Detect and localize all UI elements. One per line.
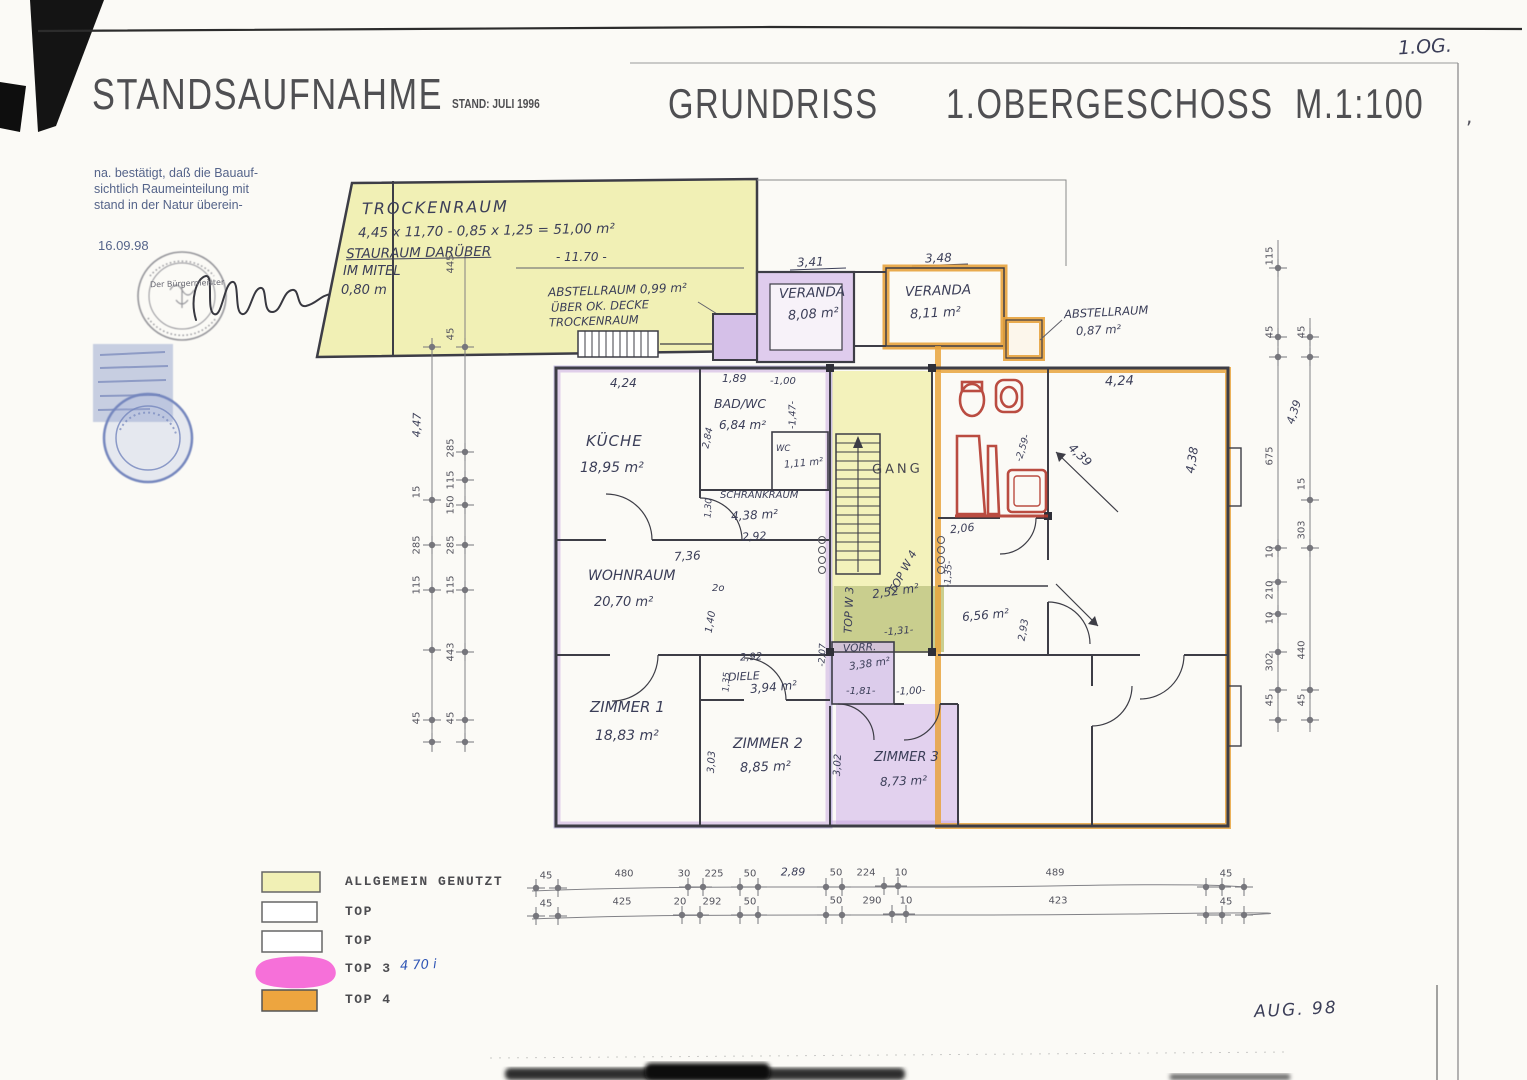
dim-label: -2,07 — [817, 643, 828, 667]
room-label-wc: WC — [776, 444, 790, 454]
room-label-top-w3: TOP W 3 — [842, 586, 857, 633]
dim-label: -1,81- — [846, 686, 875, 697]
room-label-schrankraum: SCHRANKRAUM — [720, 490, 798, 501]
chain-label: 45 — [1265, 326, 1276, 339]
room-area-kueche: 18,95 m² — [580, 460, 644, 476]
legend-item-top4: TOP 4 — [345, 992, 392, 1007]
chain-label: 45 — [1220, 869, 1233, 880]
certification-date: 16.09.98 — [98, 238, 149, 254]
dim-label: 2,92 — [742, 529, 767, 543]
dim-label: - 11.70 - — [556, 250, 607, 264]
chain-label: 10 — [1265, 546, 1276, 559]
chain-label: 150 — [446, 495, 457, 514]
certification-line3: stand in der Natur überein- — [94, 197, 243, 213]
scan-artifacts — [0, 0, 1290, 1080]
chain-label: 115 — [446, 575, 457, 594]
chain-label: 4,47 — [410, 413, 424, 438]
chain-label: 115 — [446, 470, 457, 489]
room-area-bad: 6,84 m² — [719, 418, 766, 432]
dim-label: 1,35 — [721, 672, 732, 693]
legend-item-top3: TOP 3 — [345, 961, 392, 976]
chain-label: 10 — [900, 896, 913, 907]
room-label-wohnraum: WOHNRAUM — [588, 568, 676, 584]
room-area-abstellraum: 0,87 m² — [1076, 322, 1122, 338]
chain-label: 285 — [412, 535, 423, 554]
dim-label: 2,06 — [949, 521, 975, 536]
chain-label: 425 — [612, 897, 631, 908]
veranda-blocks — [713, 268, 1062, 362]
chain-label: 20 — [674, 897, 687, 908]
dim-label: 3,48 — [925, 251, 952, 266]
dim-label: -1,00- — [896, 685, 926, 698]
room-label-trockenraum: TROCKENRAUM — [362, 197, 509, 219]
dim-label: 3,41 — [797, 255, 824, 270]
dim-label: -1,00 — [770, 376, 796, 387]
chain-label: 50 — [744, 897, 757, 908]
legend-swatch-white1 — [262, 902, 317, 922]
red-fixtures — [955, 380, 1048, 516]
dim-label: 2o — [712, 583, 724, 594]
room-area-veranda2: 8,11 m² — [910, 305, 962, 323]
chain-label: 50 — [744, 869, 757, 880]
legend-swatch-magenta — [255, 956, 335, 988]
chain-label: 302 — [1265, 652, 1276, 671]
chain-label: 303 — [1297, 520, 1308, 539]
chain-label: 45 — [1297, 326, 1308, 339]
legend-swatch-white2 — [262, 931, 322, 952]
legend-item-top1: TOP — [345, 904, 373, 919]
dim-label: 3,02 — [832, 754, 844, 777]
certification-line1: na. bestätigt, daß die Bauauf- — [94, 165, 258, 181]
room-label-veranda1: VERANDA — [779, 284, 846, 302]
dim-label: -1,35- — [943, 560, 954, 587]
dim-label: 7,36 — [674, 548, 701, 563]
dim-label: -1,47- — [788, 401, 799, 429]
sheet-frame — [38, 27, 1522, 1080]
chain-label: 10 — [895, 868, 908, 879]
chain-label: 45 — [540, 899, 553, 910]
trockenraum-note1: STAURAUM DARÜBER — [346, 244, 491, 263]
dim-label: 4,24 — [1105, 373, 1134, 389]
chain-label: 45 — [1220, 897, 1233, 908]
room-label-gang: GANG — [872, 462, 923, 478]
dim-label: 4,24 — [610, 376, 637, 390]
status-date: STAND: JULI 1996 — [452, 96, 540, 111]
room-label-zimmer2: ZIMMER 2 — [733, 736, 803, 752]
chain-label: 224 — [856, 868, 875, 879]
page-title: STANDSAUFNAHME — [92, 70, 443, 120]
chain-label: 45 — [446, 328, 457, 341]
chain-label: 225 — [704, 869, 723, 880]
chain-label: 440 — [1297, 640, 1308, 659]
room-label-kueche: KÜCHE — [586, 432, 643, 450]
chain-label: 10 — [1265, 612, 1276, 625]
legend-item-allgemein: ALLGEMEIN GENUTZT — [345, 874, 503, 889]
chain-label: 675 — [1265, 446, 1276, 465]
chain-label: 480 — [614, 869, 633, 880]
legend-swatches — [255, 872, 335, 1011]
corner-note: 1.OG. — [1397, 35, 1452, 60]
chain-label: 45 — [1265, 694, 1276, 707]
chain-label: 45 — [540, 871, 553, 882]
mayor-stamp-icon — [138, 252, 226, 340]
room-area-zimmer2: 8,85 m² — [740, 759, 791, 776]
drawing-type: GRUNDRISS — [668, 80, 879, 128]
room-area-wohnraum: 20,70 m² — [594, 595, 653, 610]
certification-line2: sichtlich Raumeinteilung mit — [94, 181, 249, 197]
room-label-zimmer1: ZIMMER 1 — [590, 698, 665, 716]
chain-label: 2,89 — [781, 866, 806, 879]
chain-label: 292 — [702, 897, 721, 908]
chain-label: 50 — [830, 868, 843, 879]
blue-stamp-icon — [93, 344, 192, 482]
dim-label: 1,89 — [722, 372, 747, 385]
room-area-zimmer1: 18,83 m² — [595, 728, 659, 744]
trockenraum-note2: IM MITEL — [343, 264, 401, 279]
chain-label: 445 — [446, 254, 457, 273]
chain-label: 115 — [1265, 246, 1276, 265]
legend-top3-handwriting: 4 70 i — [400, 957, 437, 974]
chain-label: 210 — [1265, 580, 1276, 599]
chain-label: 285 — [446, 535, 457, 554]
chain-label: 443 — [446, 642, 457, 661]
chain-label: 30 — [678, 869, 691, 880]
floor-scale: 1.OBERGESCHOSS M.1:100 — [946, 80, 1424, 128]
chain-label: 45 — [412, 712, 423, 725]
chain-label: 15 — [412, 486, 423, 499]
chain-label: 489 — [1045, 868, 1064, 879]
chain-label: 15 — [1297, 478, 1308, 491]
legend-swatch-yellow — [262, 872, 320, 892]
chain-label: 50 — [830, 896, 843, 907]
chain-label: 45 — [1297, 694, 1308, 707]
chain-label: 285 — [446, 438, 457, 457]
room-label-vorraum: VORR. — [843, 641, 877, 655]
chain-label: 423 — [1048, 896, 1067, 907]
room-label-zimmer3: ZIMMER 3 — [874, 750, 939, 765]
chain-label: 290 — [862, 896, 881, 907]
chain-label: 45 — [446, 712, 457, 725]
room-area-schrankraum: 4,38 m² — [731, 507, 779, 523]
room-area-zimmer3: 8,73 m² — [880, 773, 928, 789]
legend-item-top2: TOP — [345, 933, 373, 948]
chain-label: 115 — [412, 575, 423, 594]
trockenraum-note3: 0,80 m — [341, 283, 387, 298]
room-label-bad: BAD/WC — [714, 396, 766, 411]
dim-label: 2,92 — [740, 651, 763, 663]
dim-label: 1,30 — [703, 498, 714, 519]
frame-mark: , — [1466, 104, 1472, 128]
legend-swatch-orange — [262, 990, 317, 1011]
dim-label: 3,03 — [706, 751, 718, 774]
room-label-veranda2: VERANDA — [905, 282, 972, 300]
scanned-floor-plan-sheet: STANDSAUFNAHME STAND: JULI 1996 GRUNDRIS… — [0, 0, 1527, 1080]
